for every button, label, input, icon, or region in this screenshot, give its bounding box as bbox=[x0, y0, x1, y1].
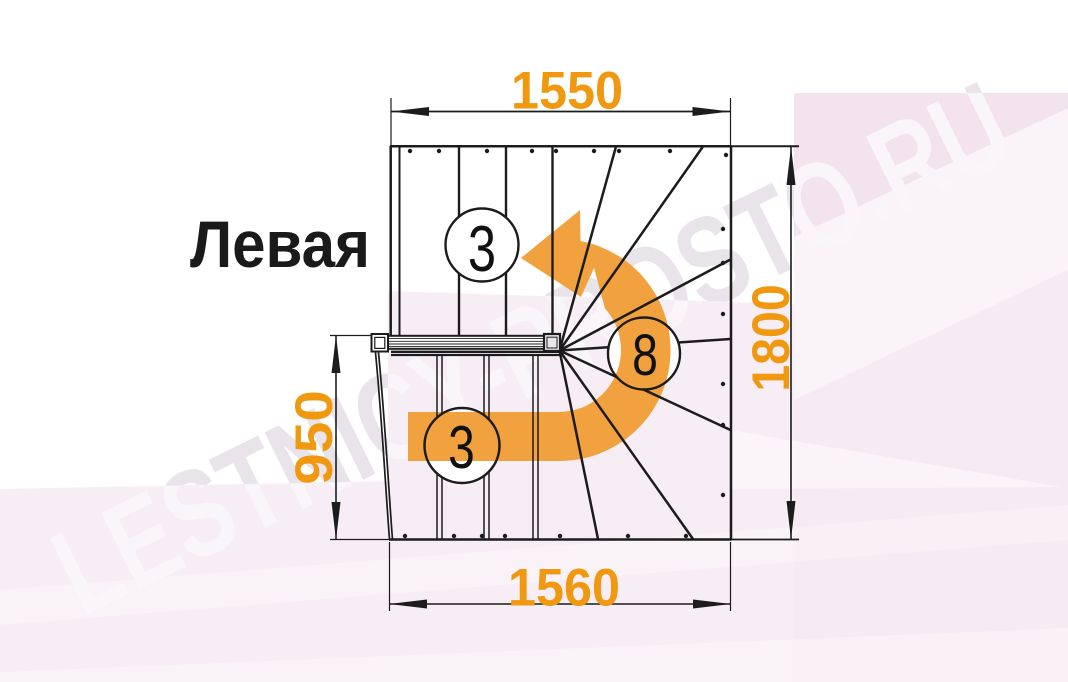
svg-text:950: 950 bbox=[284, 390, 344, 485]
svg-text:1560: 1560 bbox=[508, 557, 620, 616]
svg-text:1550: 1550 bbox=[511, 60, 623, 119]
svg-text:3: 3 bbox=[448, 414, 475, 481]
svg-text:1800: 1800 bbox=[741, 284, 801, 391]
svg-text:3: 3 bbox=[468, 213, 496, 285]
svg-text:8: 8 bbox=[632, 323, 658, 388]
svg-text:Левая: Левая bbox=[190, 208, 370, 281]
